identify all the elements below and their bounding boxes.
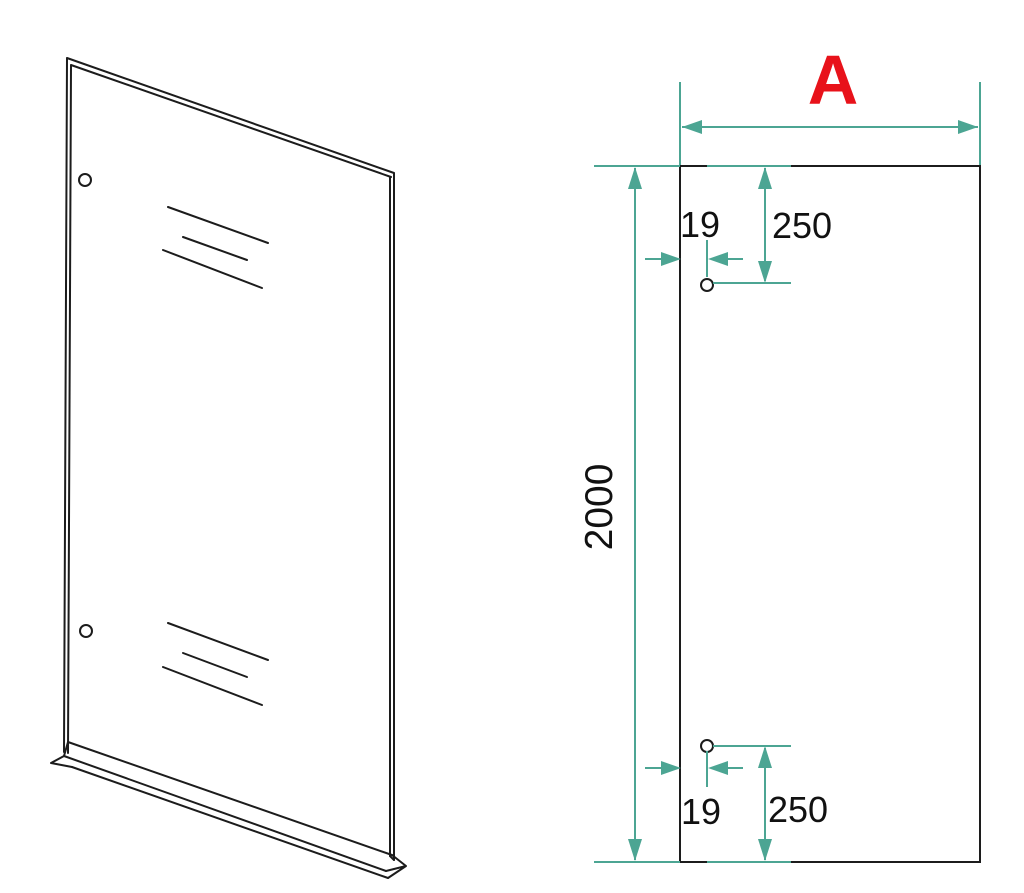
arrowhead-up-icon (628, 167, 642, 189)
arrowhead-right-icon (661, 761, 681, 775)
glass-panel-outline (64, 58, 394, 860)
mounting-hole-bottom-iso (80, 625, 92, 637)
arrowhead-right-icon (661, 252, 681, 266)
glass-reflection-lines-lower (163, 623, 268, 705)
bar-bottom-edge (72, 767, 388, 878)
reflection-line (163, 667, 262, 705)
height-dim-label: 2000 (578, 464, 621, 551)
glass-inner-edge (68, 65, 391, 856)
bottom-support-bar (51, 742, 406, 878)
isometric-view (51, 58, 406, 878)
bar-right-cap (386, 855, 406, 878)
arrowhead-right-icon (958, 120, 978, 134)
glass-reflection-lines-upper (163, 207, 268, 288)
reflection-line (163, 250, 262, 288)
mounting-hole-top-front (701, 279, 713, 291)
shower-panel-drawing: 2000 19 250 19 250 A (0, 0, 1024, 893)
reflection-line (183, 653, 247, 677)
width-dim-label: A (808, 41, 859, 119)
bottom-hole-edge-offset-label: 19 (681, 791, 721, 832)
front-view: 2000 19 250 19 250 A (578, 41, 980, 862)
arrowhead-down-icon (628, 839, 642, 861)
reflection-line (183, 237, 247, 260)
mounting-hole-top-iso (79, 174, 91, 186)
reflection-line (168, 623, 268, 660)
bar-top-edge (68, 742, 392, 855)
arrowhead-left-icon (682, 120, 702, 134)
top-hole-top-offset-label: 250 (772, 205, 832, 246)
top-hole-edge-offset-label: 19 (680, 204, 720, 245)
glass-outer-edge (64, 58, 394, 860)
technical-drawing-page: 2000 19 250 19 250 A (0, 0, 1024, 893)
panel-body (680, 166, 980, 862)
bottom-hole-bottom-offset-label: 250 (768, 789, 828, 830)
mounting-hole-bottom-front (701, 740, 713, 752)
bar-mid-edge (64, 756, 386, 871)
